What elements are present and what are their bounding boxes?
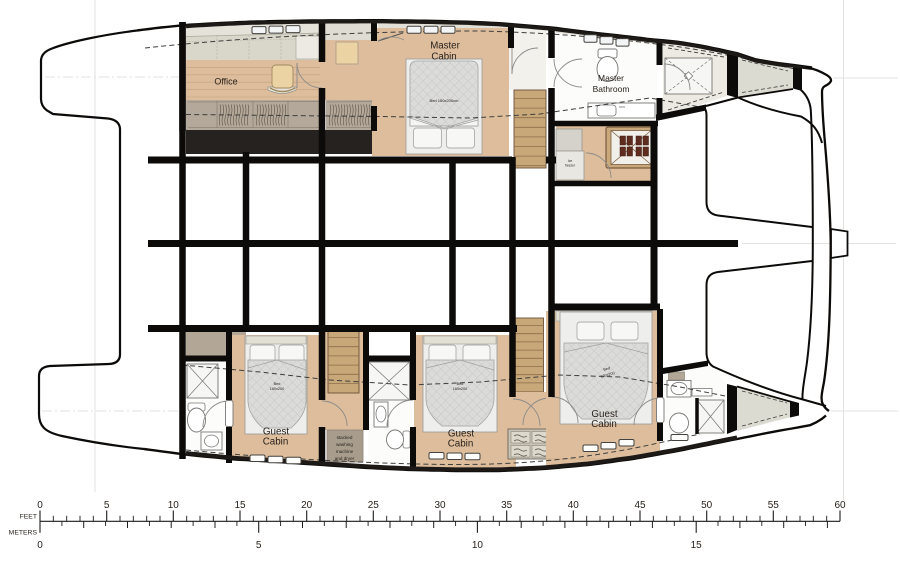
svg-text:Master: Master	[430, 41, 460, 52]
svg-text:stacked: stacked	[337, 435, 353, 440]
svg-text:45: 45	[634, 500, 646, 511]
svg-text:50: 50	[701, 500, 713, 511]
svg-text:0: 0	[37, 540, 43, 551]
svg-text:Cabin: Cabin	[431, 51, 456, 62]
svg-text:washing: washing	[336, 442, 353, 447]
svg-text:160x200: 160x200	[270, 387, 285, 391]
svg-text:METERS: METERS	[9, 530, 38, 537]
svg-text:FEET: FEET	[20, 514, 37, 521]
svg-text:160x200: 160x200	[453, 387, 468, 391]
svg-text:60: 60	[834, 500, 846, 511]
svg-text:Bed: Bed	[274, 382, 281, 386]
svg-text:35: 35	[501, 500, 513, 511]
svg-text:freezer: freezer	[565, 164, 576, 168]
svg-text:Cabin: Cabin	[263, 436, 289, 447]
svg-text:Cabin: Cabin	[591, 419, 617, 430]
svg-text:Bathroom: Bathroom	[593, 84, 630, 94]
svg-text:40: 40	[568, 500, 580, 511]
svg-text:5: 5	[104, 500, 110, 511]
svg-text:10: 10	[472, 540, 484, 551]
svg-text:15: 15	[691, 540, 703, 551]
svg-text:0: 0	[37, 500, 43, 511]
svg-text:and dryer: and dryer	[335, 456, 355, 461]
svg-text:25: 25	[368, 500, 380, 511]
svg-text:machine: machine	[336, 449, 354, 454]
svg-text:Cabin: Cabin	[448, 439, 474, 450]
svg-text:Office: Office	[214, 77, 237, 87]
svg-text:Bed 160x200cm: Bed 160x200cm	[430, 98, 460, 103]
svg-text:20: 20	[301, 500, 313, 511]
svg-text:15: 15	[234, 500, 246, 511]
svg-text:55: 55	[768, 500, 780, 511]
svg-text:30: 30	[434, 500, 446, 511]
svg-text:Ice: Ice	[568, 159, 572, 163]
svg-text:5: 5	[256, 540, 262, 551]
svg-text:Master: Master	[598, 73, 624, 83]
svg-text:10: 10	[168, 500, 180, 511]
